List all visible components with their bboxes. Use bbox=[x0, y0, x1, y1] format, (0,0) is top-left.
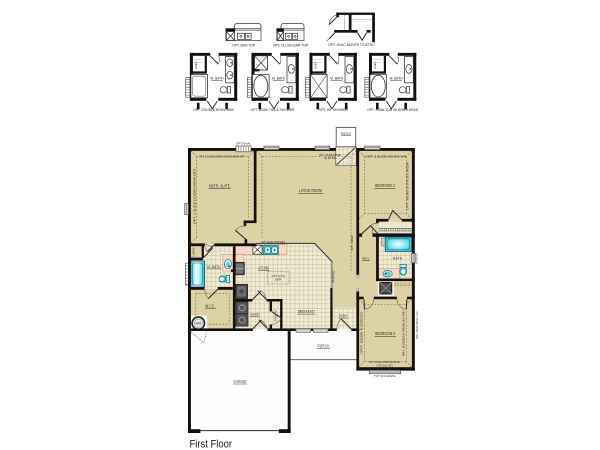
svg-text:W.D. PROS WALL LOC: W.D. PROS WALL LOC bbox=[415, 311, 419, 338]
svg-text:ENTRY: ENTRY bbox=[339, 313, 348, 318]
svg-text:OPT. SOAK TUB W/ SHWR HEAD: OPT. SOAK TUB W/ SHWR HEAD bbox=[367, 108, 418, 112]
svg-text:HALL: HALL bbox=[362, 255, 369, 260]
svg-text:OPT. FLUSH BAR TOP: OPT. FLUSH BAR TOP bbox=[273, 44, 309, 48]
svg-text:(2) 6′8 WH: (2) 6′8 WH bbox=[324, 156, 336, 160]
svg-text:(7′8 CLG HT): (7′8 CLG HT) bbox=[377, 363, 393, 367]
svg-text:4′0 OPNG: 4′0 OPNG bbox=[331, 271, 335, 283]
svg-text:WH: WH bbox=[195, 322, 201, 326]
svg-text:OPT. DOUBLE BOWL SINK: OPT. DOUBLE BOWL SINK bbox=[193, 108, 235, 112]
svg-text:LAUNDRY: LAUNDRY bbox=[250, 312, 260, 316]
svg-text:OPT. WDW EGRESS WDW: OPT. WDW EGRESS WDW bbox=[406, 162, 410, 210]
svg-text:PORCH: PORCH bbox=[318, 343, 330, 348]
svg-text:OPTIONAL: OPTIONAL bbox=[236, 142, 252, 146]
svg-text:KITCHEN: KITCHEN bbox=[259, 265, 270, 270]
svg-text:OPT. 2 SLIDE DOORS WH: OPT. 2 SLIDE DOORS WH bbox=[366, 155, 406, 159]
svg-text:First Floor: First Floor bbox=[190, 438, 233, 450]
svg-text:OPT 42″ HI: OPT 42″ HI bbox=[271, 274, 285, 278]
svg-text:OPT. 2 SLIDE DOORS (6′0x6′8) W: OPT. 2 SLIDE DOORS (6′0x6′8) WDW OPT. bbox=[199, 155, 245, 159]
svg-text:OPT. BAR TOP: OPT. BAR TOP bbox=[232, 44, 256, 48]
svg-text:WH. EGRESS WDW (E) WH: WH. EGRESS WDW (E) WH bbox=[402, 310, 406, 356]
svg-text:LINEN: LINEN bbox=[192, 247, 196, 256]
svg-text:TYP. 5x3 GRATE: TYP. 5x3 GRATE bbox=[374, 374, 396, 378]
svg-text:OPT. HVAC MOVES TO ATTIC: OPT. HVAC MOVES TO ATTIC bbox=[328, 43, 375, 47]
svg-text:BEDROOM 3: BEDROOM 3 bbox=[375, 331, 395, 336]
svg-text:EGRESS: EGRESS bbox=[415, 253, 419, 264]
svg-text:OPT. WDW: OPT. WDW bbox=[350, 235, 354, 250]
svg-text:BEDROOM 2: BEDROOM 2 bbox=[375, 183, 395, 188]
svg-text:OPT. BAR TOP DRS: OPT. BAR TOP DRS bbox=[261, 240, 285, 244]
svg-text:M. BATH: M. BATH bbox=[390, 77, 404, 81]
svg-text:PATIO: PATIO bbox=[341, 132, 351, 136]
svg-text:OPT. 60″ SHOWER: OPT. 60″ SHOWER bbox=[319, 108, 348, 112]
svg-text:M. BATH: M. BATH bbox=[207, 264, 220, 269]
svg-text:PANTRY: PANTRY bbox=[274, 309, 278, 321]
svg-text:OPT. WDW EGRESS: OPT. WDW EGRESS bbox=[360, 312, 364, 354]
svg-text:BAR: BAR bbox=[276, 278, 282, 282]
svg-text:BATH: BATH bbox=[393, 257, 403, 261]
svg-text:OPT. 2 SLIDE DOORS WDW OPT.: OPT. 2 SLIDE DOORS WDW OPT. bbox=[192, 168, 196, 224]
svg-text:GARAGE: GARAGE bbox=[234, 379, 247, 384]
svg-text:OPT. SOAK TUB & SHOWER: OPT. SOAK TUB & SHOWER bbox=[251, 108, 295, 112]
svg-text:BREAKFAST: BREAKFAST bbox=[298, 309, 315, 314]
svg-text:W.I.C.: W.I.C. bbox=[205, 303, 215, 308]
svg-text:M. BATH: M. BATH bbox=[272, 77, 286, 81]
svg-text:M. BATH: M. BATH bbox=[211, 77, 225, 81]
svg-text:M. BATH: M. BATH bbox=[330, 77, 344, 81]
